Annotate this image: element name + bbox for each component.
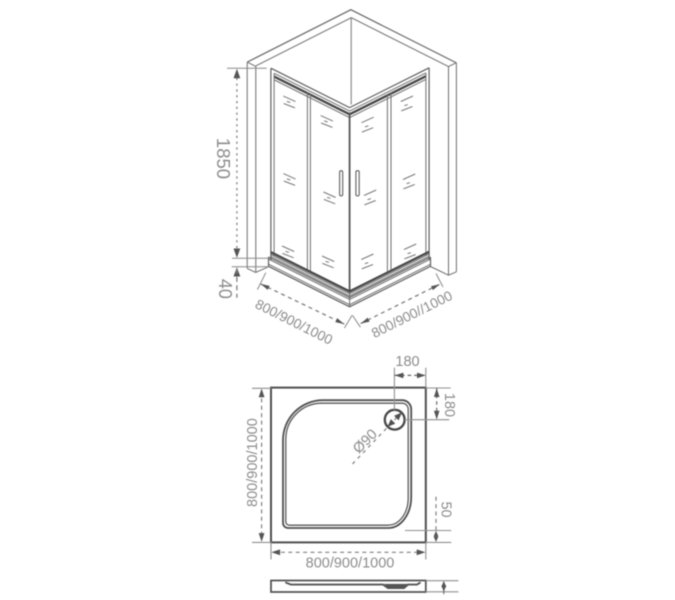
svg-text:180: 180 [395,354,419,370]
svg-text:180: 180 [441,393,457,417]
svg-text:50: 50 [437,501,453,517]
svg-text:800/900/1000: 800/900/1000 [306,556,395,572]
svg-text:800/900/1000: 800/900/1000 [245,418,261,507]
svg-text:40: 40 [215,279,235,299]
svg-text:1850: 1850 [213,138,234,179]
